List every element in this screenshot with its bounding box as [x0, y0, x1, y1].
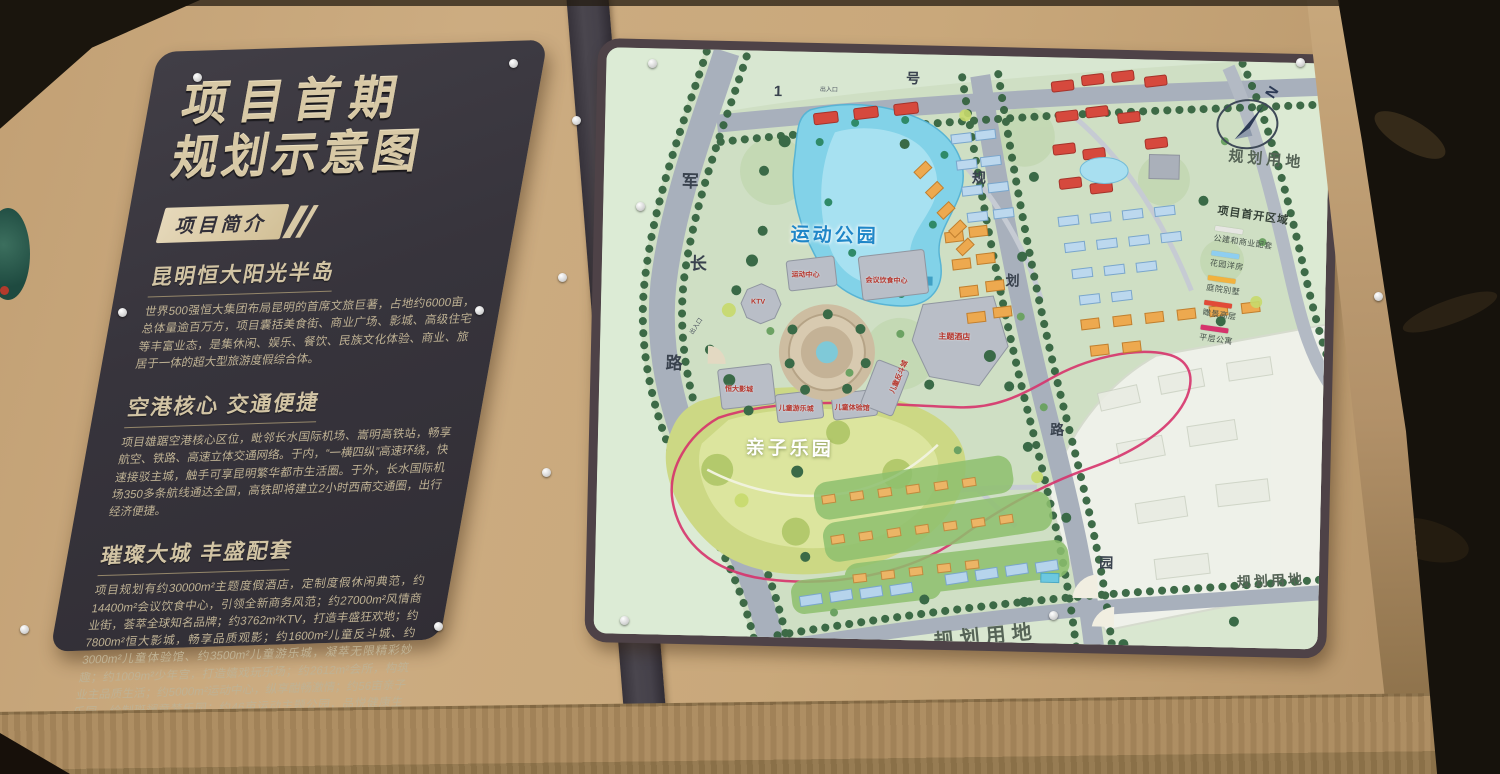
- screw-icon: [1296, 58, 1305, 67]
- screw-icon: [118, 308, 127, 317]
- road-label-no1: 号: [906, 68, 920, 88]
- section-body: 世界500强恒大集团布局昆明的首席文旅巨著，占地约6000亩，总体量逾百万方，项…: [134, 294, 476, 374]
- screw-icon: [20, 625, 29, 634]
- facility-label-ktv: KTV: [751, 299, 765, 306]
- section-heading: 昆明恒大阳光半岛: [148, 255, 338, 297]
- sports-park-label: 运动公园: [790, 219, 879, 248]
- road-label-guihua: 路: [1050, 419, 1064, 439]
- section-body: 项目雄踞空港核心区位，毗邻长水国际机场、嵩明高铁站，畅享航空、铁路、高速立体交通…: [107, 425, 452, 522]
- entrance-label: 出入口: [820, 84, 838, 93]
- intro-badge: 项目简介: [156, 204, 290, 243]
- title-line2: 规划示意图: [168, 125, 506, 182]
- page-title: 项目首期 规划示意图: [168, 71, 516, 182]
- facility-label-dining: 会议饮食中心: [865, 275, 907, 286]
- screw-icon: [509, 59, 518, 68]
- kids-park-label: 亲子乐园: [745, 432, 834, 461]
- facility-label-cinema: 恒大影城: [725, 384, 753, 395]
- screw-icon: [572, 116, 581, 125]
- facility-label-hotel: 主题酒店: [938, 331, 970, 343]
- screw-icon: [542, 468, 551, 477]
- screw-icon: [558, 273, 567, 282]
- section-badge-row: 项目简介: [157, 198, 493, 244]
- section-project: 昆明恒大阳光半岛 世界500强恒大集团布局昆明的首席文旅巨著，占地约6000亩，…: [134, 251, 484, 374]
- road-label-guihua: 划: [1005, 270, 1019, 290]
- section-transport: 空港核心 交通便捷 项目雄踞空港核心区位，毗邻长水国际机场、嵩明高铁站，畅享航空…: [107, 382, 460, 522]
- screw-icon: [648, 59, 657, 68]
- road-label-guihua: 规: [972, 168, 986, 188]
- masterplan-map: N 军 长 路 1 号 规 划 路 园 出入口 出入口 运动公园 亲子乐园 运动…: [584, 38, 1340, 659]
- road-label-no1: 1: [774, 83, 783, 100]
- section-heading: 空港核心 交通便捷: [124, 386, 322, 428]
- screw-icon: [193, 73, 202, 82]
- screw-icon: [636, 202, 645, 211]
- road-label-guihua: 园: [1099, 553, 1113, 573]
- facility-label-kids-exp: 儿童体验馆: [835, 402, 870, 413]
- planning-land-label: 规划用地: [1236, 569, 1305, 592]
- screw-icon: [1049, 611, 1058, 620]
- road-label-junchang: 军: [682, 167, 700, 192]
- board-top-edge: [140, 0, 1340, 6]
- title-line1: 项目首期: [178, 71, 516, 128]
- road-label-junchang: 长: [690, 249, 708, 274]
- screw-icon: [434, 622, 443, 631]
- signboard-photo: 项目首期 规划示意图 项目简介 昆明恒大阳光半岛 世界500强恒大集团布局昆明的…: [0, 0, 1500, 774]
- screw-icon: [475, 306, 484, 315]
- facility-label-kids-play: 儿童游乐城: [779, 403, 814, 414]
- screw-icon: [1374, 292, 1383, 301]
- road-label-junchang: 路: [665, 349, 683, 374]
- screw-icon: [620, 616, 629, 625]
- leaf: [0, 286, 9, 295]
- project-info-panel: 项目首期 规划示意图 项目简介 昆明恒大阳光半岛 世界500强恒大集团布局昆明的…: [50, 40, 548, 652]
- facility-label-sports-center: 运动中心: [792, 269, 820, 280]
- map-canvas: N 军 长 路 1 号 规 划 路 园 出入口 出入口 运动公园 亲子乐园 运动…: [593, 47, 1330, 649]
- section-heading: 璀璨大城 丰盛配套: [97, 534, 295, 576]
